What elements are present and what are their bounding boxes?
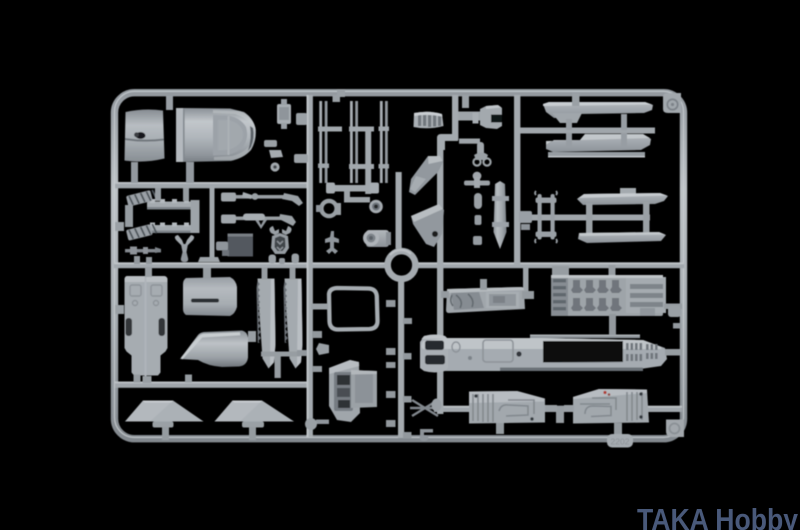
svg-text:2202: 2202 <box>611 437 630 447</box>
svg-text:TAKA Hobby: TAKA Hobby <box>637 503 798 530</box>
